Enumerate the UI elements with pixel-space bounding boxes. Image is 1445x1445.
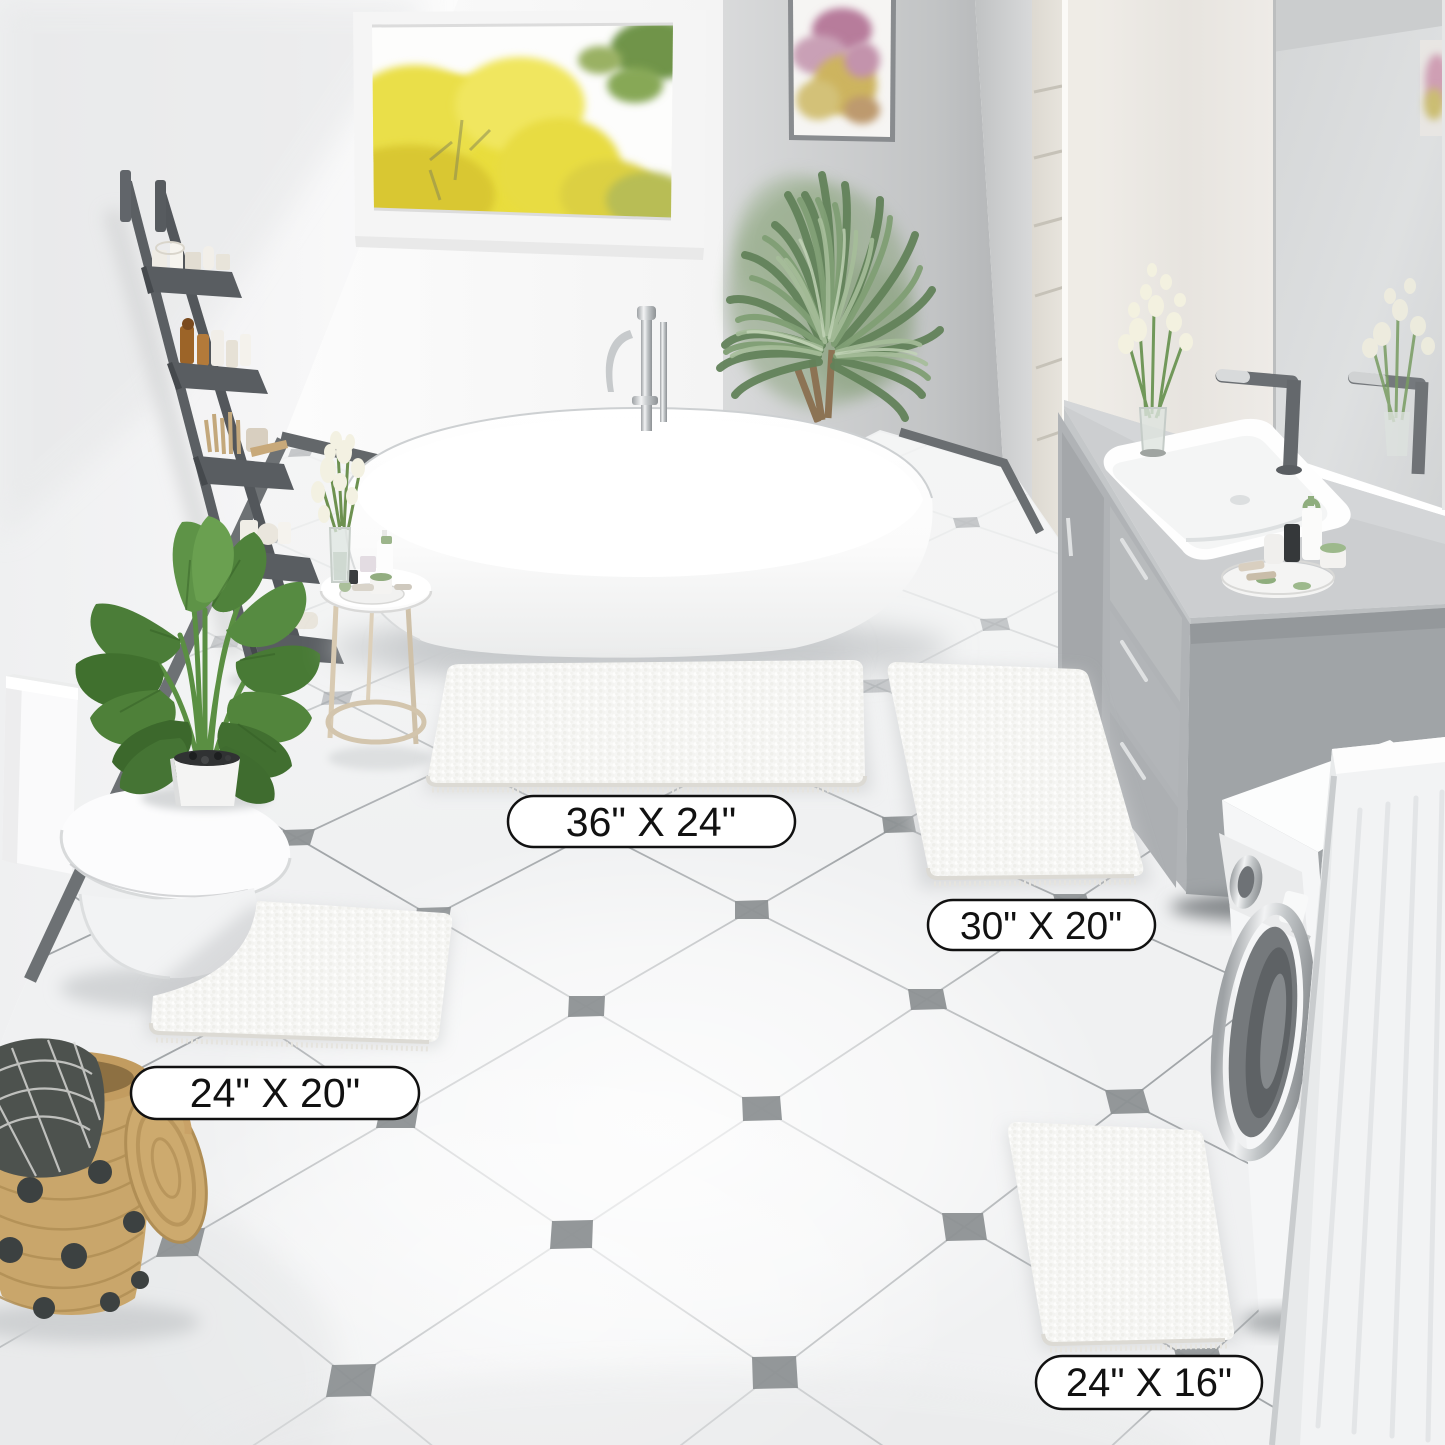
svg-text:36" X 24": 36" X 24" <box>566 799 736 845</box>
svg-text:30" X 20": 30" X 20" <box>960 905 1122 948</box>
svg-text:24" X 16": 24" X 16" <box>1066 1361 1232 1405</box>
svg-text:24" X 20": 24" X 20" <box>190 1070 360 1116</box>
